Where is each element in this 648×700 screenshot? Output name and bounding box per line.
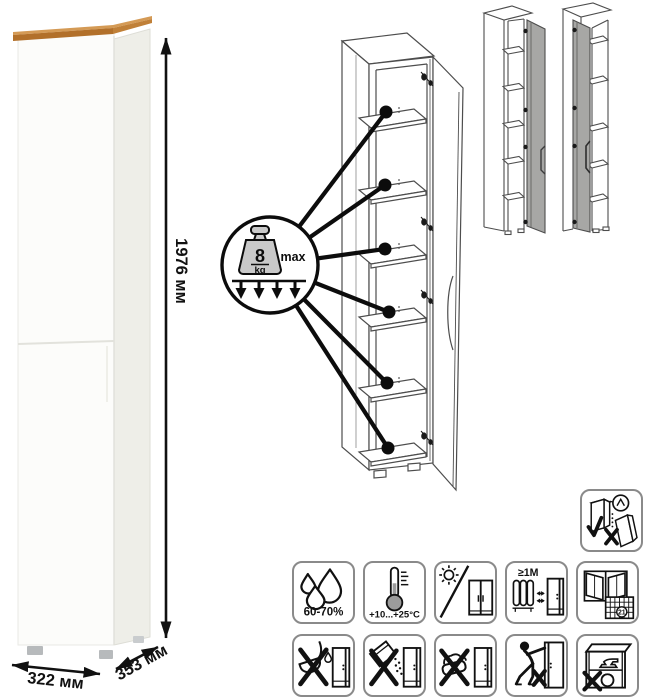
mini-door-gray [527, 20, 545, 233]
foot [99, 650, 113, 659]
upright-cabinet [591, 499, 609, 531]
shelf-pointer-dot [379, 243, 392, 256]
care-icon-humidity: 60-70% [292, 561, 355, 624]
calendar-icon: 21 [606, 597, 634, 618]
foot [27, 646, 43, 655]
temperature-label: +10...+25°C [369, 609, 420, 620]
cross-icon [534, 671, 545, 685]
shelf-pointer-dot [383, 306, 396, 319]
shelf-pointer-dot [380, 106, 393, 119]
wardrobe-icon [548, 579, 564, 615]
care-icon-ventilation: 21 [576, 561, 639, 624]
furniture-instruction-sheet: 1976 мм 322 мм 353 мм [0, 0, 648, 700]
exploded-view: 8 kg max [222, 33, 463, 490]
mini-shelves [503, 47, 524, 201]
water-drops-icon [301, 569, 341, 609]
door-variant-right [484, 6, 545, 235]
foot [133, 636, 144, 643]
humidity-label: 60-70% [304, 607, 344, 619]
load-max-label: max [280, 250, 305, 264]
wardrobe-icon [545, 642, 563, 687]
depth-dimension-label: 353 мм [112, 641, 170, 684]
care-icon-no-wet-cleaning [434, 634, 497, 697]
care-icon-no-liquids [292, 634, 355, 697]
product-photo [13, 16, 152, 659]
cabinet-side [114, 29, 150, 645]
care-icon-heat-distance: ≥1М [505, 561, 568, 624]
cross-icon [606, 530, 617, 544]
care-icon-no-dragging [505, 634, 568, 697]
load-value: 8 [255, 246, 265, 266]
wardrobe-icon [469, 581, 492, 615]
cabinet-front [18, 33, 114, 645]
height-dimension-label: 1976 мм [172, 238, 190, 304]
distance-arrows-icon [537, 591, 545, 603]
wardrobe-icon [404, 648, 421, 687]
magnifier-icon [613, 495, 629, 511]
shelf-pointer-dot [382, 442, 395, 455]
sun-icon [439, 565, 458, 584]
powder-dots [394, 658, 402, 675]
wardrobe-icon [333, 648, 350, 687]
care-icon-no-powder [363, 634, 426, 697]
care-icon-sunlight [434, 561, 497, 624]
care-icon-no-heavy-items [576, 634, 639, 697]
secure-to-wall-icon [580, 489, 643, 552]
wall-dots [612, 513, 614, 527]
load-unit: kg [254, 265, 265, 276]
thermometer-icon [387, 568, 409, 611]
shelf-pointer-dot [379, 179, 392, 192]
radiator-icon [513, 581, 534, 612]
mini-door-gray [573, 20, 590, 232]
load-badge: 8 kg max [222, 217, 318, 313]
kettlebell-icon [602, 674, 614, 686]
wardrobe-icon [475, 648, 492, 687]
door-panel [433, 57, 463, 490]
shelf-pointer-dot [381, 377, 394, 390]
distance-label: ≥1М [518, 567, 539, 579]
door-variant-left [563, 3, 611, 233]
care-icon-temperature: +10...+25°C [363, 561, 426, 624]
calendar-day-label: 21 [618, 609, 626, 616]
